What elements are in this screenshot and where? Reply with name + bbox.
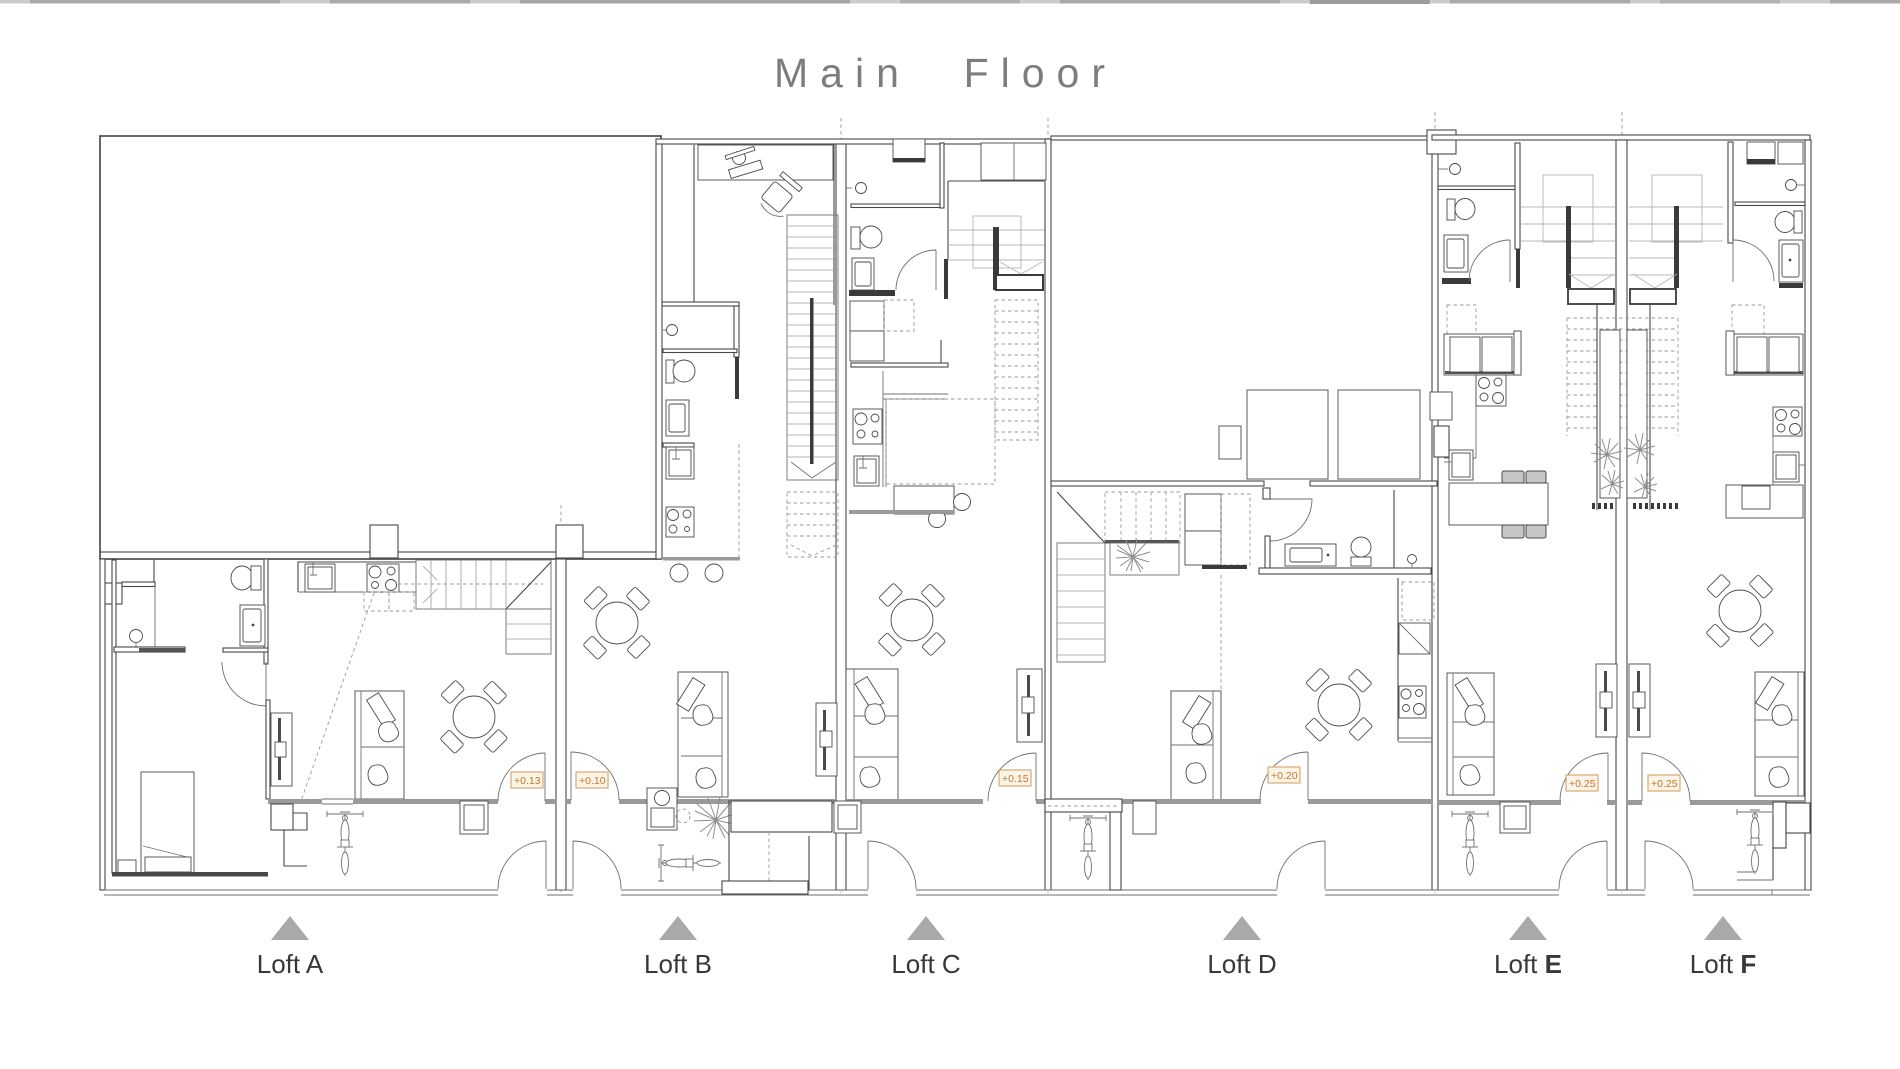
- svg-text:Main Floor: Main Floor: [774, 50, 1117, 96]
- svg-text:Loft D: Loft D: [1207, 949, 1276, 979]
- svg-text:Loft B: Loft B: [644, 949, 712, 979]
- svg-text:+0.25: +0.25: [1651, 778, 1678, 790]
- svg-text:Loft F: Loft F: [1690, 949, 1756, 979]
- svg-text:Loft E: Loft E: [1494, 949, 1562, 979]
- svg-text:+0.13: +0.13: [514, 775, 541, 787]
- svg-text:+0.10: +0.10: [579, 775, 606, 787]
- svg-text:Loft C: Loft C: [891, 949, 960, 979]
- svg-text:Loft A: Loft A: [257, 949, 324, 979]
- svg-text:+0.15: +0.15: [1002, 773, 1029, 785]
- svg-text:+0.20: +0.20: [1271, 770, 1298, 782]
- svg-text:+0.25: +0.25: [1569, 778, 1596, 790]
